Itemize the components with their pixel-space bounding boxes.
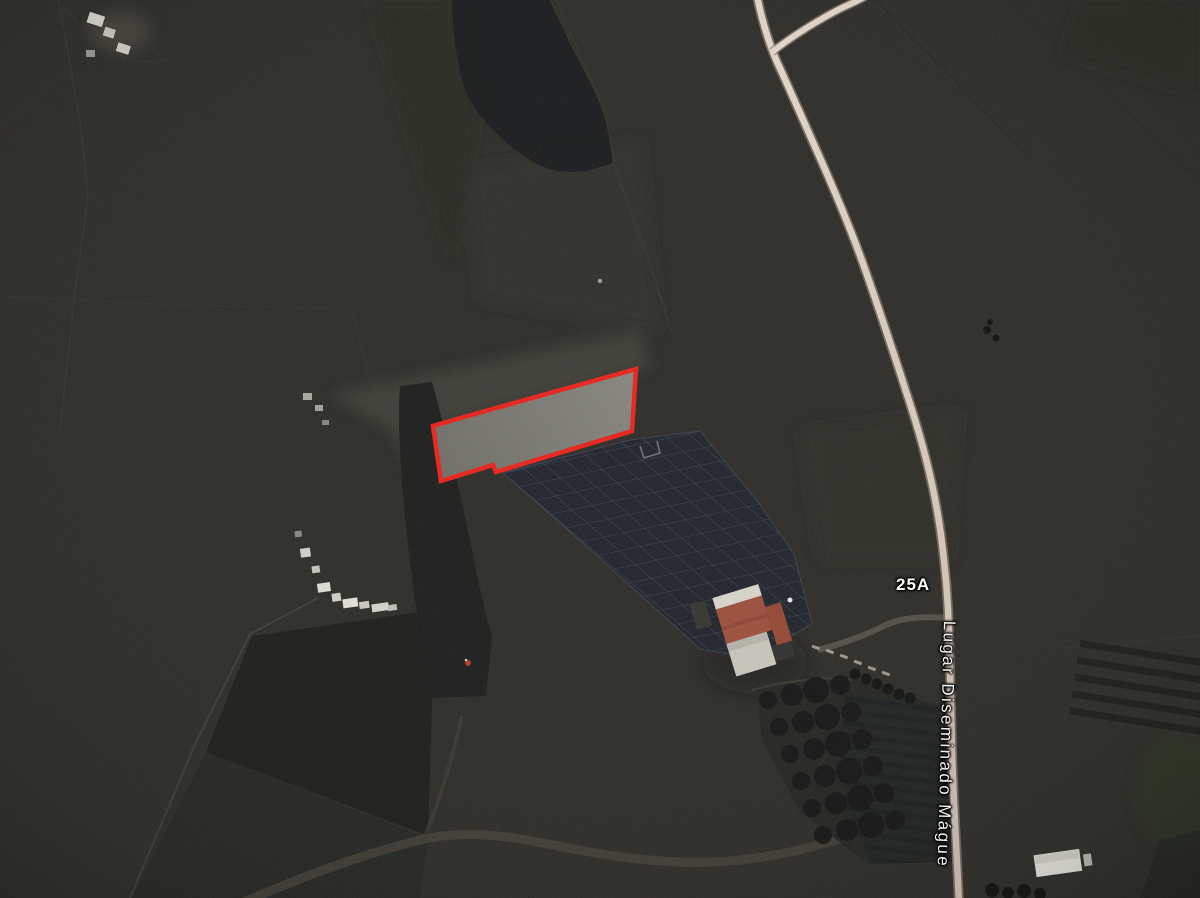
satellite-imagery-layer (0, 0, 1200, 898)
vignette (0, 0, 1200, 898)
route-marker-label: 25A (896, 575, 930, 595)
satellite-map-view[interactable]: 25A Lugar Diseminado Mágue (0, 0, 1200, 898)
